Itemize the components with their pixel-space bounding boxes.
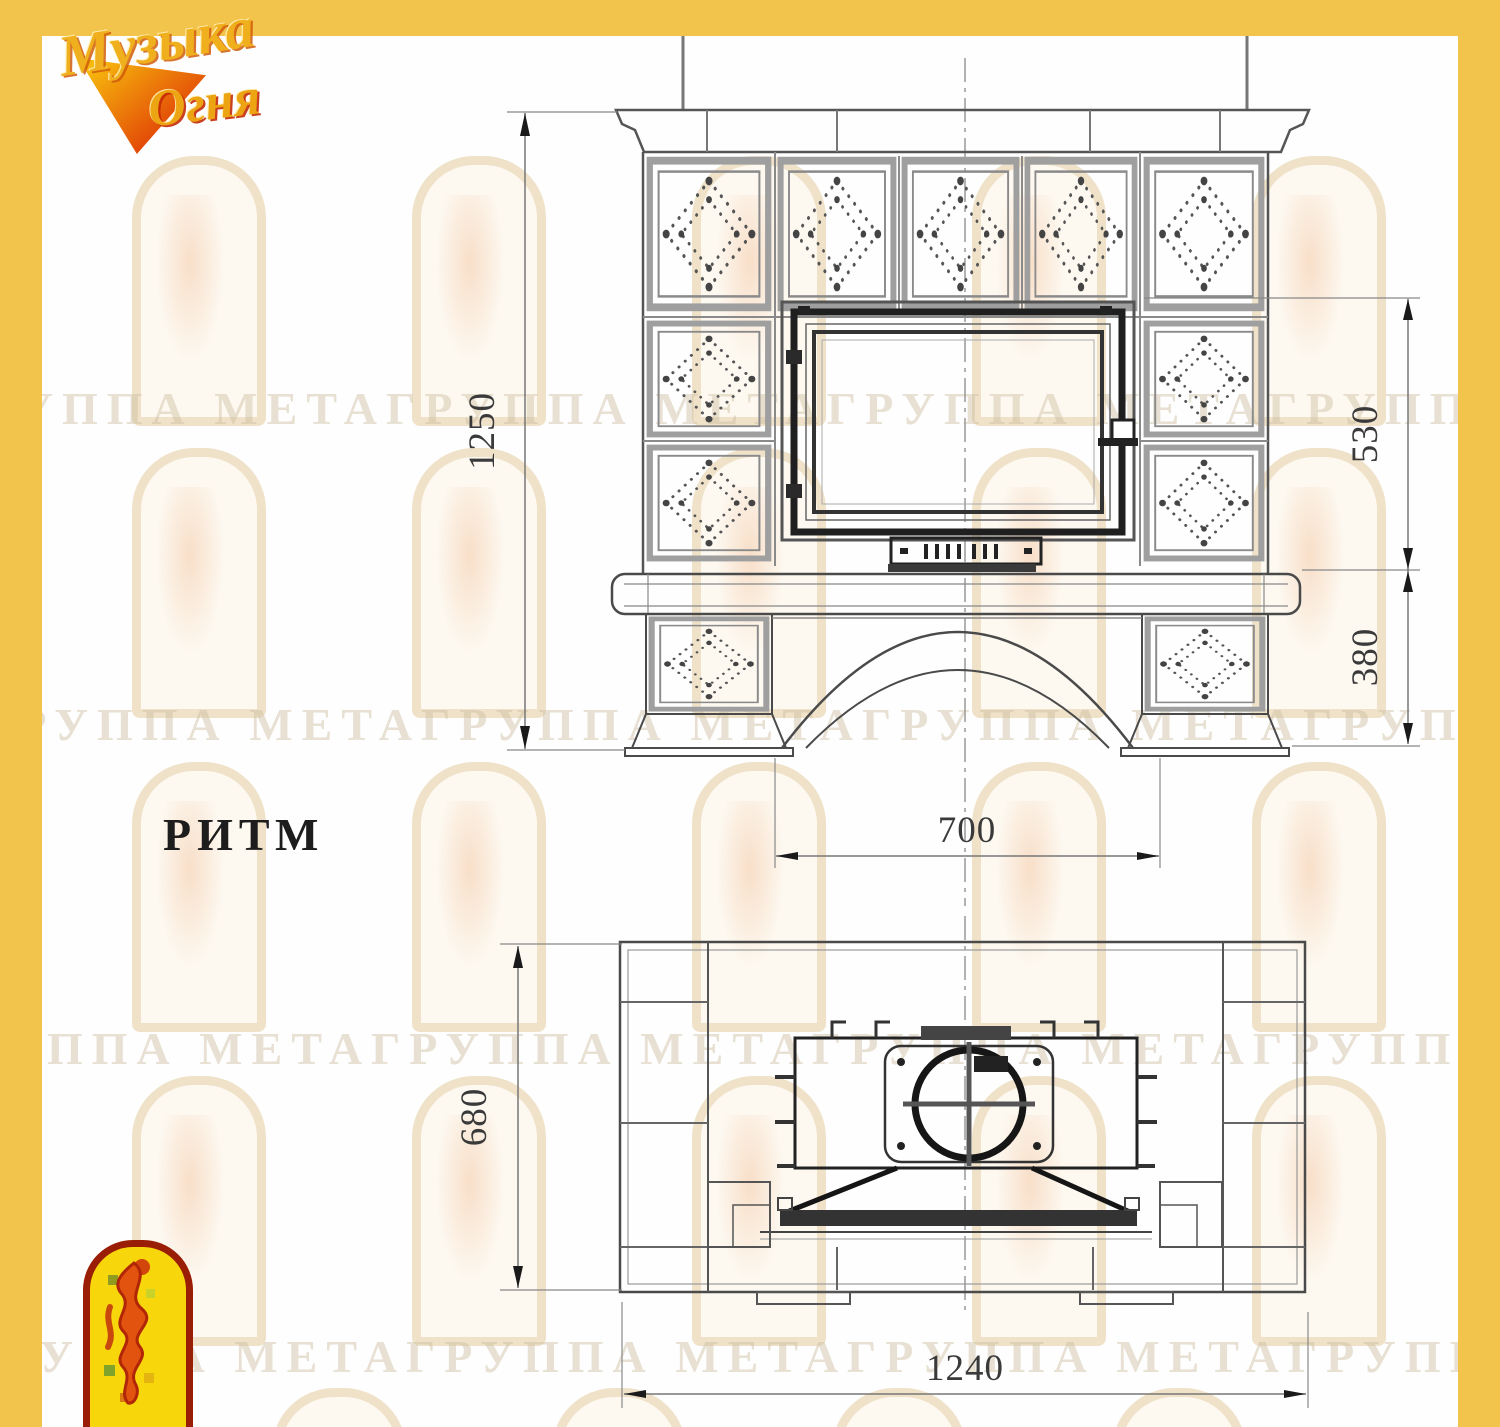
svg-text:700: 700 [938, 810, 997, 851]
front-view: 1250 530 380 70 [462, 36, 1420, 906]
insert-plan [760, 1022, 1157, 1239]
base-pillars-and-arch [625, 614, 1289, 756]
svg-text:530: 530 [1345, 405, 1386, 464]
drawing-sheet: ГРУППА МЕТАГРУППА МЕТАГРУППА МЕТАГРУППА … [0, 0, 1500, 1427]
svg-text:680: 680 [454, 1088, 495, 1147]
technical-drawing: 1250 530 380 70 [0, 0, 1500, 1427]
dimension-opening-700: 700 [775, 758, 1160, 868]
firebox-door [782, 302, 1138, 540]
mantel-shelf [612, 574, 1300, 614]
dimension-firebox-530: 530 380 [1144, 298, 1420, 746]
svg-text:1240: 1240 [926, 1348, 1004, 1389]
tile-row-top [650, 161, 1262, 308]
dimension-width-1240: 1240 [622, 1302, 1308, 1408]
svg-text:380: 380 [1345, 628, 1386, 687]
dimension-height-1250: 1250 [462, 112, 625, 750]
svg-text:1250: 1250 [462, 392, 503, 470]
dimension-depth-680: 680 [454, 944, 622, 1290]
plan-view: 680 1240 [454, 916, 1308, 1408]
